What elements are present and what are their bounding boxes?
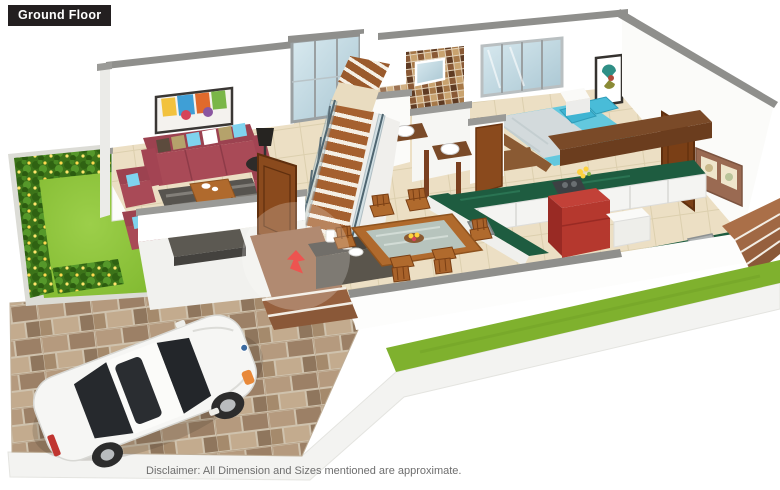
disclaimer-text: Disclaimer: All Dimension and Sizes ment…	[146, 465, 461, 477]
floor-title-label: Ground Floor	[8, 5, 111, 26]
watermark	[242, 202, 350, 310]
floorplan-page: Ground Floor Disclaimer: All Dimension a…	[0, 0, 780, 490]
wall-painting	[156, 88, 232, 133]
bedroom-window	[482, 38, 562, 96]
floorplan-scene	[0, 0, 780, 490]
bathroom-window	[416, 59, 444, 85]
bathroom-door	[476, 124, 502, 194]
refrigerator	[548, 188, 610, 258]
